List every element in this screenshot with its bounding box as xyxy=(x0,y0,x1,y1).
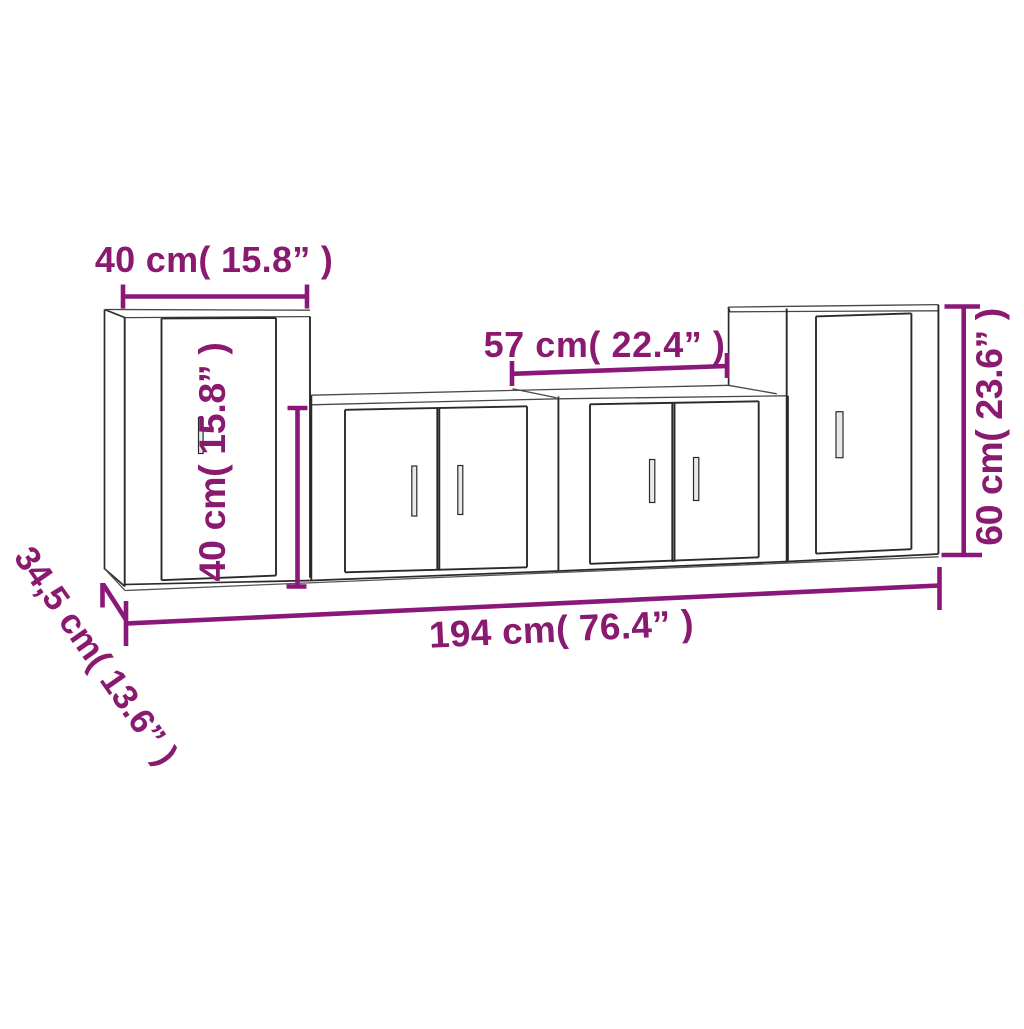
svg-text:40 cm( 15.8” ): 40 cm( 15.8” ) xyxy=(191,343,233,582)
svg-text:60 cm( 23.6” ): 60 cm( 23.6” ) xyxy=(968,308,1010,546)
svg-text:40 cm( 15.8” ): 40 cm( 15.8” ) xyxy=(95,239,333,280)
svg-text:57 cm( 22.4” ): 57 cm( 22.4” ) xyxy=(484,324,726,365)
